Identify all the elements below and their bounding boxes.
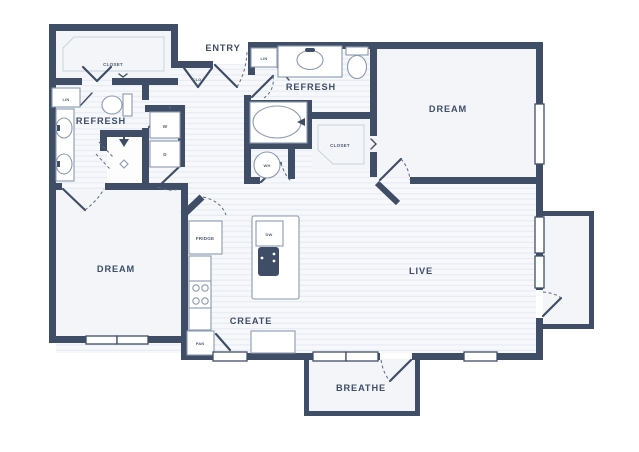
balcony-wall: [304, 411, 420, 416]
linen-master-label: LIN: [63, 97, 70, 102]
dishwasher-label: DW: [266, 232, 273, 237]
faucet: [57, 125, 60, 131]
wall: [305, 112, 377, 119]
breathe-label: BREATHE: [336, 383, 386, 393]
wall: [49, 24, 178, 31]
window: [213, 352, 247, 361]
wall: [288, 149, 295, 179]
wall: [112, 78, 178, 85]
window: [535, 104, 544, 164]
toilet-tank: [346, 47, 368, 55]
wall: [49, 183, 62, 190]
dream-master-label: DREAM: [429, 104, 467, 114]
pantry-label: PAN: [196, 341, 205, 346]
floorplan-drawing: ENTRY CLOSET LIN REFRESH CLO W D LIN REF…: [0, 0, 639, 452]
dream-guest-label: DREAM: [97, 264, 135, 274]
window: [117, 336, 148, 344]
create-label: CREATE: [230, 316, 273, 326]
live-label: LIVE: [409, 266, 433, 276]
sink-dot: [273, 253, 276, 256]
wall: [49, 78, 82, 85]
burner: [193, 298, 199, 304]
wall: [370, 49, 377, 119]
floorplan-page: ENTRY CLOSET LIN REFRESH CLO W D LIN REF…: [0, 0, 639, 452]
closet-guest-label: CLOSET: [330, 143, 350, 148]
burner: [193, 285, 199, 291]
faucet: [305, 48, 315, 52]
balcony-wall: [304, 359, 309, 416]
toilet-bowl: [102, 96, 122, 114]
toilet-bowl: [348, 56, 367, 79]
island-sink: [258, 247, 279, 276]
linen-guest-label: LIN: [261, 56, 268, 61]
coat-closet-label: CLO: [193, 77, 202, 82]
dryer-label: D: [163, 152, 167, 157]
window: [464, 352, 497, 361]
wall: [105, 183, 188, 190]
sink: [297, 51, 323, 70]
toilet-tank: [123, 94, 132, 116]
balcony-wall: [415, 359, 420, 416]
wall: [142, 85, 149, 100]
sink-dot: [273, 260, 276, 263]
faucet: [57, 161, 60, 167]
refresh-master-label: REFRESH: [76, 116, 126, 126]
sink-dot: [261, 257, 264, 260]
balcony-wall: [543, 324, 594, 329]
balcony-wall: [543, 211, 594, 216]
washer-label: W: [163, 124, 168, 129]
stove: [189, 281, 211, 308]
refresh-guest-label: REFRESH: [286, 82, 336, 92]
counter-bottom: [251, 331, 295, 353]
wall: [410, 177, 543, 184]
water-heater-label: WH: [264, 163, 271, 168]
balcony-wall: [589, 211, 594, 329]
burner: [202, 285, 208, 291]
window: [346, 352, 378, 361]
window: [535, 217, 544, 253]
entry-label: ENTRY: [205, 43, 240, 53]
bathtub-basin: [253, 106, 301, 138]
window: [86, 336, 117, 344]
window: [313, 352, 346, 361]
burner: [202, 298, 208, 304]
wall: [244, 177, 260, 184]
window: [535, 256, 544, 288]
closet-master-label: CLOSET: [103, 62, 123, 67]
dream-guest-floor: [56, 190, 181, 336]
fridge-label: FRIDGE: [196, 236, 215, 241]
wall: [171, 61, 213, 68]
wall: [370, 152, 377, 177]
wall: [370, 119, 377, 136]
